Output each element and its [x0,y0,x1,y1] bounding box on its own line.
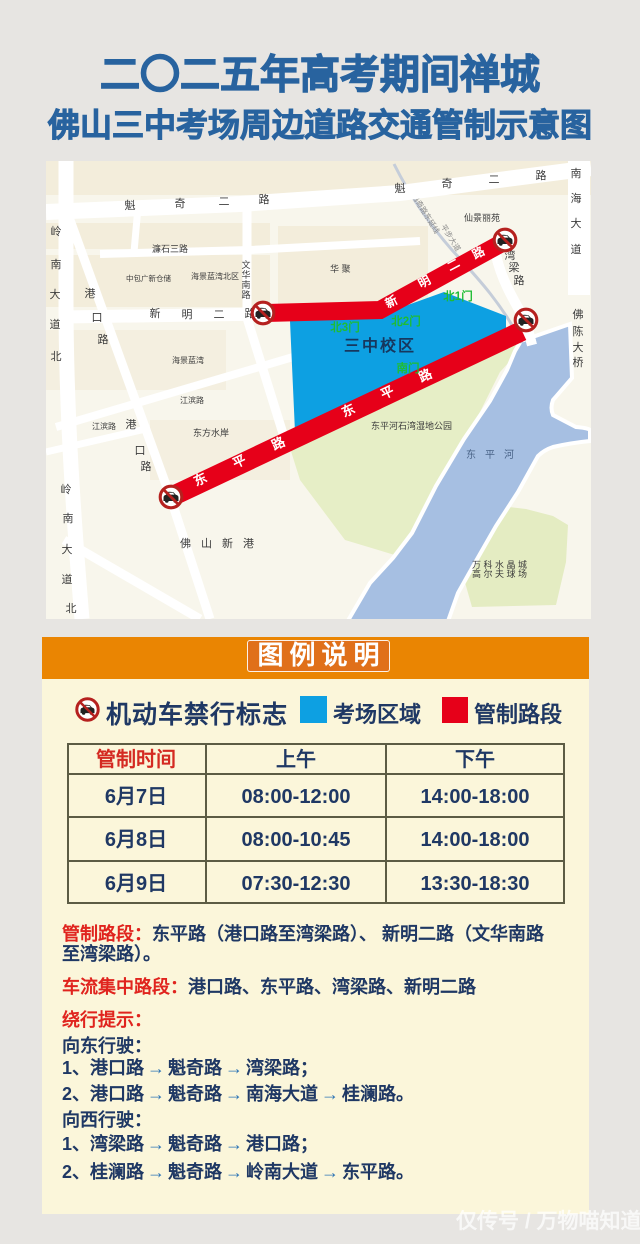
svg-text:路: 路 [241,289,250,300]
svg-text:路: 路 [141,460,152,473]
svg-text:南: 南 [51,258,62,271]
svg-text:江滨路: 江滨路 [92,421,116,431]
svg-text:文: 文 [241,259,250,270]
svg-text:道: 道 [50,317,61,331]
svg-text:南: 南 [241,279,250,290]
svg-text:下午: 下午 [455,747,495,771]
svg-text:明: 明 [182,308,193,321]
svg-text:陈: 陈 [573,324,584,338]
svg-text:三中校区: 三中校区 [344,336,416,355]
svg-text:北: 北 [66,602,77,615]
svg-text:港: 港 [126,418,137,431]
svg-text:奇: 奇 [175,197,186,210]
svg-text:仙景丽苑: 仙景丽苑 [464,212,500,223]
svg-text:高 尔 夫 球 场: 高 尔 夫 球 场 [472,568,527,579]
svg-text:口: 口 [92,312,103,324]
svg-text:口: 口 [135,445,146,457]
svg-text:北3门: 北3门 [330,320,359,334]
svg-text:南: 南 [571,167,582,180]
svg-text:南门: 南门 [397,361,420,375]
svg-text:大: 大 [571,216,582,230]
svg-text:东平河: 东平河 [466,448,523,461]
svg-text:路: 路 [536,169,547,182]
svg-text:佛: 佛 [573,308,584,321]
svg-text:管制时间: 管制时间 [96,747,176,771]
svg-text:东方水岸: 东方水岸 [193,427,229,438]
svg-text:华: 华 [241,269,250,280]
svg-text:二: 二 [219,196,230,208]
svg-text:濂石三路: 濂石三路 [152,243,188,254]
svg-text:14:00-18:00: 14:00-18:00 [421,786,530,808]
svg-text:新: 新 [150,306,161,320]
svg-text:道: 道 [571,242,582,256]
svg-text:大: 大 [62,542,73,556]
svg-text:魁: 魁 [395,181,406,195]
svg-text:6月9日: 6月9日 [105,873,167,895]
svg-text:6月7日: 6月7日 [105,786,167,808]
svg-text:海景蓝湾: 海景蓝湾 [172,355,204,365]
svg-text:二: 二 [214,309,225,321]
svg-text:13:30-18:30: 13:30-18:30 [421,873,530,895]
svg-text:北1门: 北1门 [443,289,472,303]
svg-text:华 聚: 华 聚 [330,263,351,274]
svg-text:江滨路: 江滨路 [180,395,204,405]
svg-text:海: 海 [571,191,582,205]
svg-text:岭: 岭 [51,224,62,238]
svg-text:北: 北 [51,350,62,363]
svg-text:08:00-10:45: 08:00-10:45 [242,829,351,851]
svg-text:海景蓝湾北区: 海景蓝湾北区 [191,271,239,281]
svg-text:路: 路 [98,333,109,346]
svg-text:08:00-12:00: 08:00-12:00 [242,786,351,808]
svg-text:魁: 魁 [125,198,136,212]
svg-text:北2门: 北2门 [391,314,420,328]
svg-text:佛山新港: 佛山新港 [180,536,264,550]
svg-text:二: 二 [489,174,500,186]
svg-text:东平河石湾湿地公园: 东平河石湾湿地公园 [371,420,452,431]
svg-text:路: 路 [259,193,270,206]
svg-text:南: 南 [63,512,74,525]
svg-text:港: 港 [85,287,96,300]
svg-text:14:00-18:00: 14:00-18:00 [421,829,530,851]
svg-text:大: 大 [50,287,61,301]
svg-text:道: 道 [62,572,73,586]
svg-text:07:30-12:30: 07:30-12:30 [242,873,351,895]
svg-text:桥: 桥 [573,356,584,369]
svg-text:大: 大 [573,340,584,354]
svg-text:岭: 岭 [61,482,72,496]
svg-text:奇: 奇 [442,177,453,190]
svg-text:梁: 梁 [509,260,520,274]
svg-text:6月8日: 6月8日 [105,829,167,851]
svg-text:路: 路 [514,274,525,287]
svg-text:中包广新仓储: 中包广新仓储 [126,273,171,283]
svg-text:上午: 上午 [276,747,316,771]
